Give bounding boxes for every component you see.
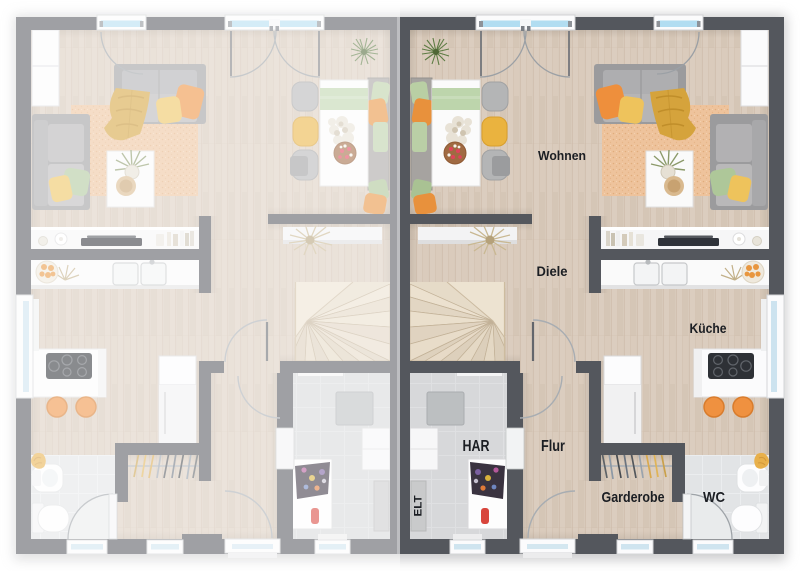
svg-text:Flur: Flur [541, 438, 565, 455]
svg-text:Diele: Diele [537, 263, 568, 279]
svg-text:WC: WC [703, 489, 725, 506]
svg-text:Garderobe: Garderobe [602, 489, 665, 506]
svg-text:Wohnen: Wohnen [538, 148, 586, 163]
svg-text:HAR: HAR [463, 438, 490, 455]
svg-text:Küche: Küche [690, 320, 727, 336]
svg-text:ELT: ELT [413, 495, 425, 516]
